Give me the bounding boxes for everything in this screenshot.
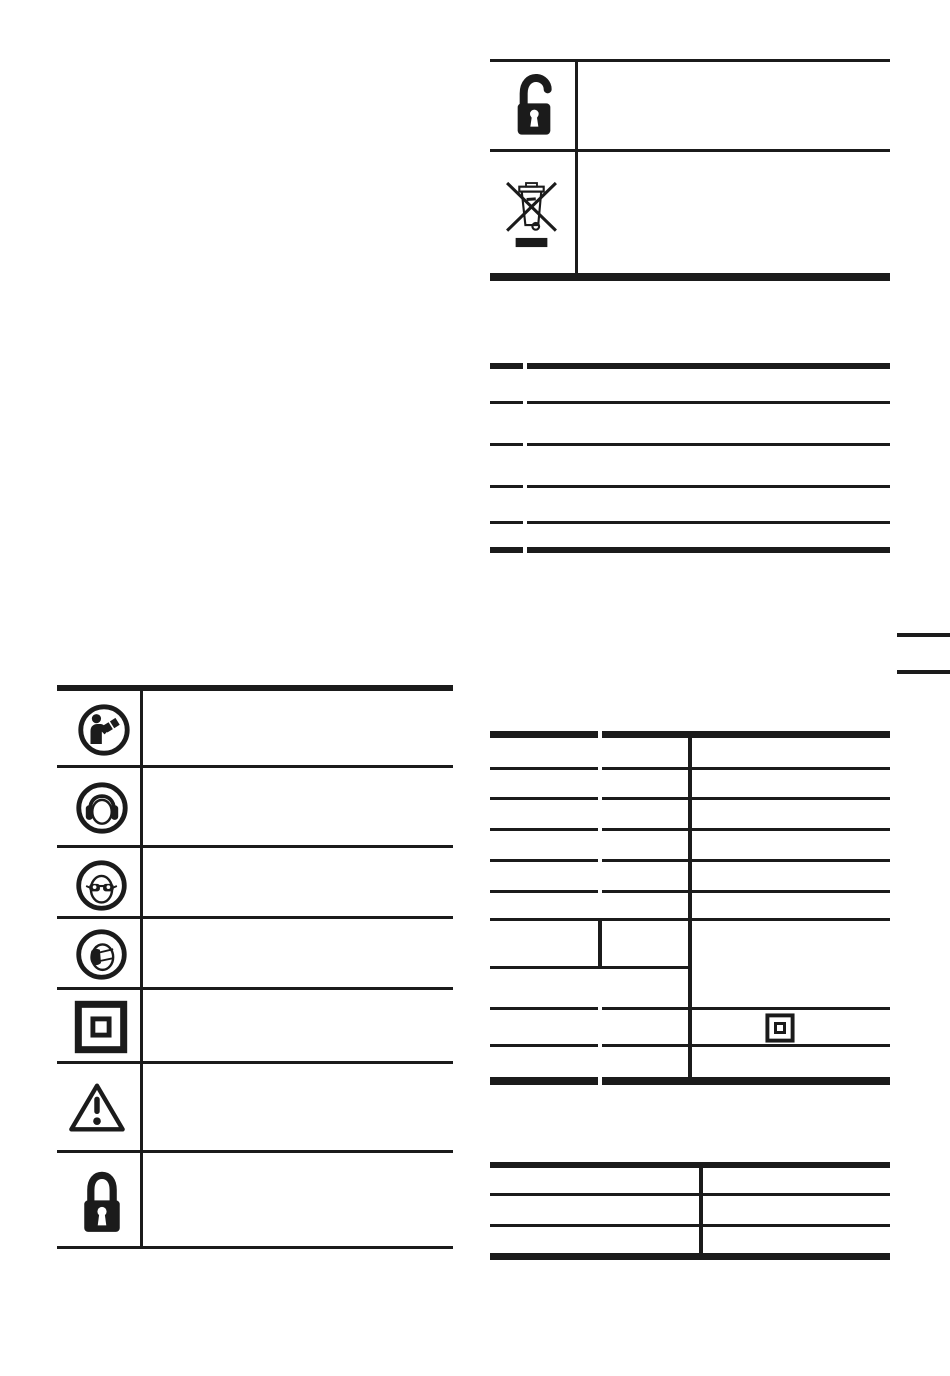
table-border [57,916,453,919]
double-insulation-icon [74,1000,128,1054]
table-border [602,890,890,893]
table-border [602,1044,890,1047]
table-border [490,1007,598,1010]
padlock-closed-icon [79,1166,125,1238]
double-insulation-small-icon [765,1013,795,1043]
table-border [602,1077,890,1085]
table-border [602,918,890,921]
table-border [602,828,890,831]
table-border [527,547,890,553]
table-border [490,859,598,862]
manual-page [0,0,950,1376]
table-border [57,765,453,768]
dust-mask-icon [75,928,128,981]
table-border [527,401,890,404]
table-divider [575,59,578,273]
table-divider [140,685,143,1249]
table-border [602,1007,890,1010]
table-border [57,1061,453,1064]
padlock-open-icon [509,69,557,141]
table-border [57,845,453,848]
table-border [490,1077,598,1085]
table-border [490,890,598,893]
edge-mark [897,670,950,674]
table-border [490,401,523,404]
warning-icon [67,1081,127,1134]
table-border [57,1150,453,1153]
table-border [490,485,523,488]
table-subdivider [598,918,602,969]
table-border [490,1253,890,1260]
read-manual-icon [77,703,131,757]
table-border [490,363,523,369]
table-border [527,521,890,524]
table-border [490,521,523,524]
table-border [57,987,453,990]
table-border [490,443,523,446]
table-border [602,859,890,862]
table-border [490,1224,890,1227]
table-border [490,149,890,152]
table-border [490,273,890,281]
table-border [57,1246,453,1249]
table-border [602,966,690,969]
table-border [490,1044,598,1047]
table-border [602,731,890,738]
table-border [490,1162,890,1168]
table-border [602,797,890,800]
ear-protection-icon [75,781,129,835]
table-border [490,59,890,62]
table-border [490,767,598,770]
table-border [57,685,453,691]
table-border [527,443,890,446]
table-border [527,485,890,488]
table-divider [688,738,692,1085]
table-border [490,828,598,831]
table-border [490,547,523,553]
table-border [490,918,598,921]
table-border [602,767,890,770]
edge-mark [897,633,950,637]
table-border [490,966,598,969]
weee-crossed-bin-icon [501,170,562,254]
table-border [527,363,890,369]
eye-protection-icon [75,859,128,912]
table-border [490,797,598,800]
table-border [490,731,598,738]
table-divider [699,1168,703,1253]
table-border [490,1193,890,1196]
